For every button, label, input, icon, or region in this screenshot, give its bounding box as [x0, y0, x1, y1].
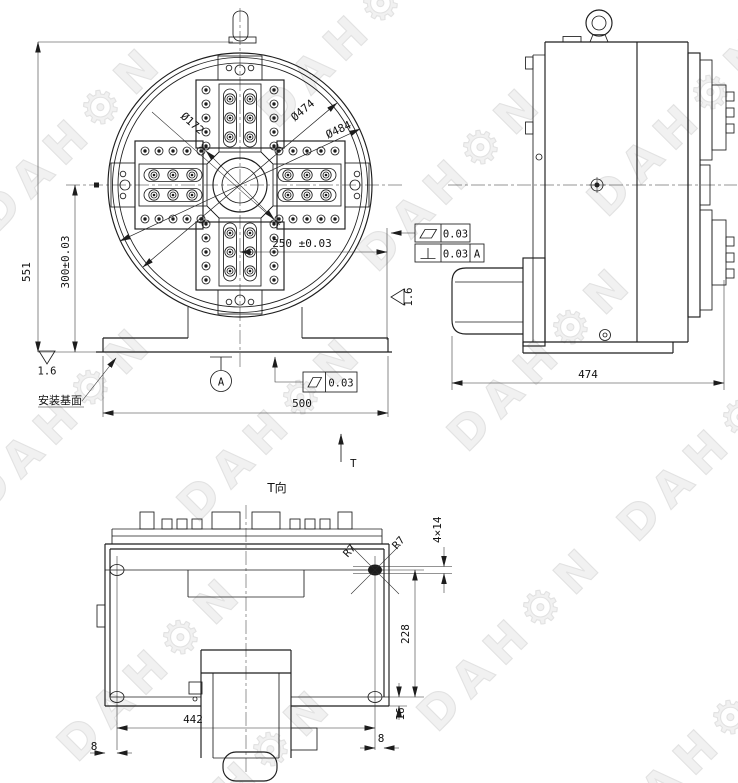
- faceplate-top-edge: [112, 512, 382, 544]
- motor-housing: [452, 258, 545, 346]
- t-direction-label: T: [350, 457, 357, 470]
- roughness-base-value: 1.6: [38, 366, 57, 378]
- dim-dia-474: Ø474: [288, 97, 317, 124]
- side-view: [448, 10, 737, 353]
- perpendicularity-icon: [421, 248, 436, 259]
- drawing-canvas: Ø172 Ø474 Ø484 551 300±0.03 250 ±0.03 50…: [0, 0, 738, 783]
- flatness-frame-front: 0.03: [275, 357, 357, 392]
- dim-8-right: 8: [378, 732, 385, 745]
- motor-bottom: [189, 650, 317, 781]
- dim-551: 551: [20, 262, 33, 282]
- dim-500: 500: [292, 397, 312, 410]
- flatness-value: 0.03: [328, 378, 353, 390]
- flatness-icon: [308, 378, 322, 388]
- pin-label-left: R7: [341, 542, 358, 559]
- dim-474: 474: [578, 368, 598, 381]
- side-body: [526, 42, 689, 342]
- perpendicularity-value: 0.03: [443, 249, 468, 261]
- dim-16: 16: [394, 707, 407, 720]
- side-view-dimensions: 474 0.03 0.03 A: [391, 224, 724, 390]
- dim-4x14: 4×14: [431, 516, 444, 543]
- side-flatness-value: 0.03: [443, 229, 468, 241]
- housing-body: [97, 544, 389, 706]
- t-direction-marker: T: [341, 434, 357, 470]
- view-title: T向: [266, 480, 286, 495]
- datum-a-label: A: [218, 377, 225, 389]
- roughness-base-mark: 1.6: [38, 351, 57, 378]
- roughness-side-value: 1.6: [403, 288, 415, 307]
- dim-228: 228: [399, 624, 412, 644]
- datum-a-flag: A: [210, 357, 232, 392]
- lower-screw: [600, 330, 611, 341]
- lifting-pin: [229, 11, 256, 43]
- roughness-icon: [39, 351, 55, 364]
- dim-dia-484: Ø484: [324, 118, 354, 141]
- front-view-dimensions: Ø172 Ø474 Ø484 551 300±0.03 250 ±0.03 50…: [20, 42, 415, 417]
- eye-bolt: [563, 10, 612, 42]
- perpendicularity-datum: A: [474, 249, 481, 261]
- bottom-view-dimensions: R7 R7 4×14 228 16 442 8: [90, 516, 452, 753]
- dim-442: 442: [183, 713, 203, 726]
- cover-screw: [589, 177, 605, 193]
- pin-label-right: R7: [390, 534, 407, 551]
- flatness-icon: [420, 230, 437, 239]
- mount-surface-label: 安装基面: [38, 393, 82, 407]
- roughness-side-mark: 1.6: [391, 288, 415, 307]
- dim-300: 300±0.03: [59, 236, 72, 289]
- dim-250: 250 ±0.03: [272, 237, 332, 250]
- corner-holes: [110, 546, 399, 750]
- drawing-sheet: DAH⚙N DAH⚙N DAH⚙N DAH⚙N DAH⚙N DAH⚙N DAH⚙…: [0, 0, 738, 783]
- centerline-mark: [94, 183, 99, 188]
- dim-8-left: 8: [91, 740, 98, 753]
- tolerance-frames: 0.03 0.03 A: [391, 224, 484, 262]
- bottom-view: T T向: [90, 434, 452, 781]
